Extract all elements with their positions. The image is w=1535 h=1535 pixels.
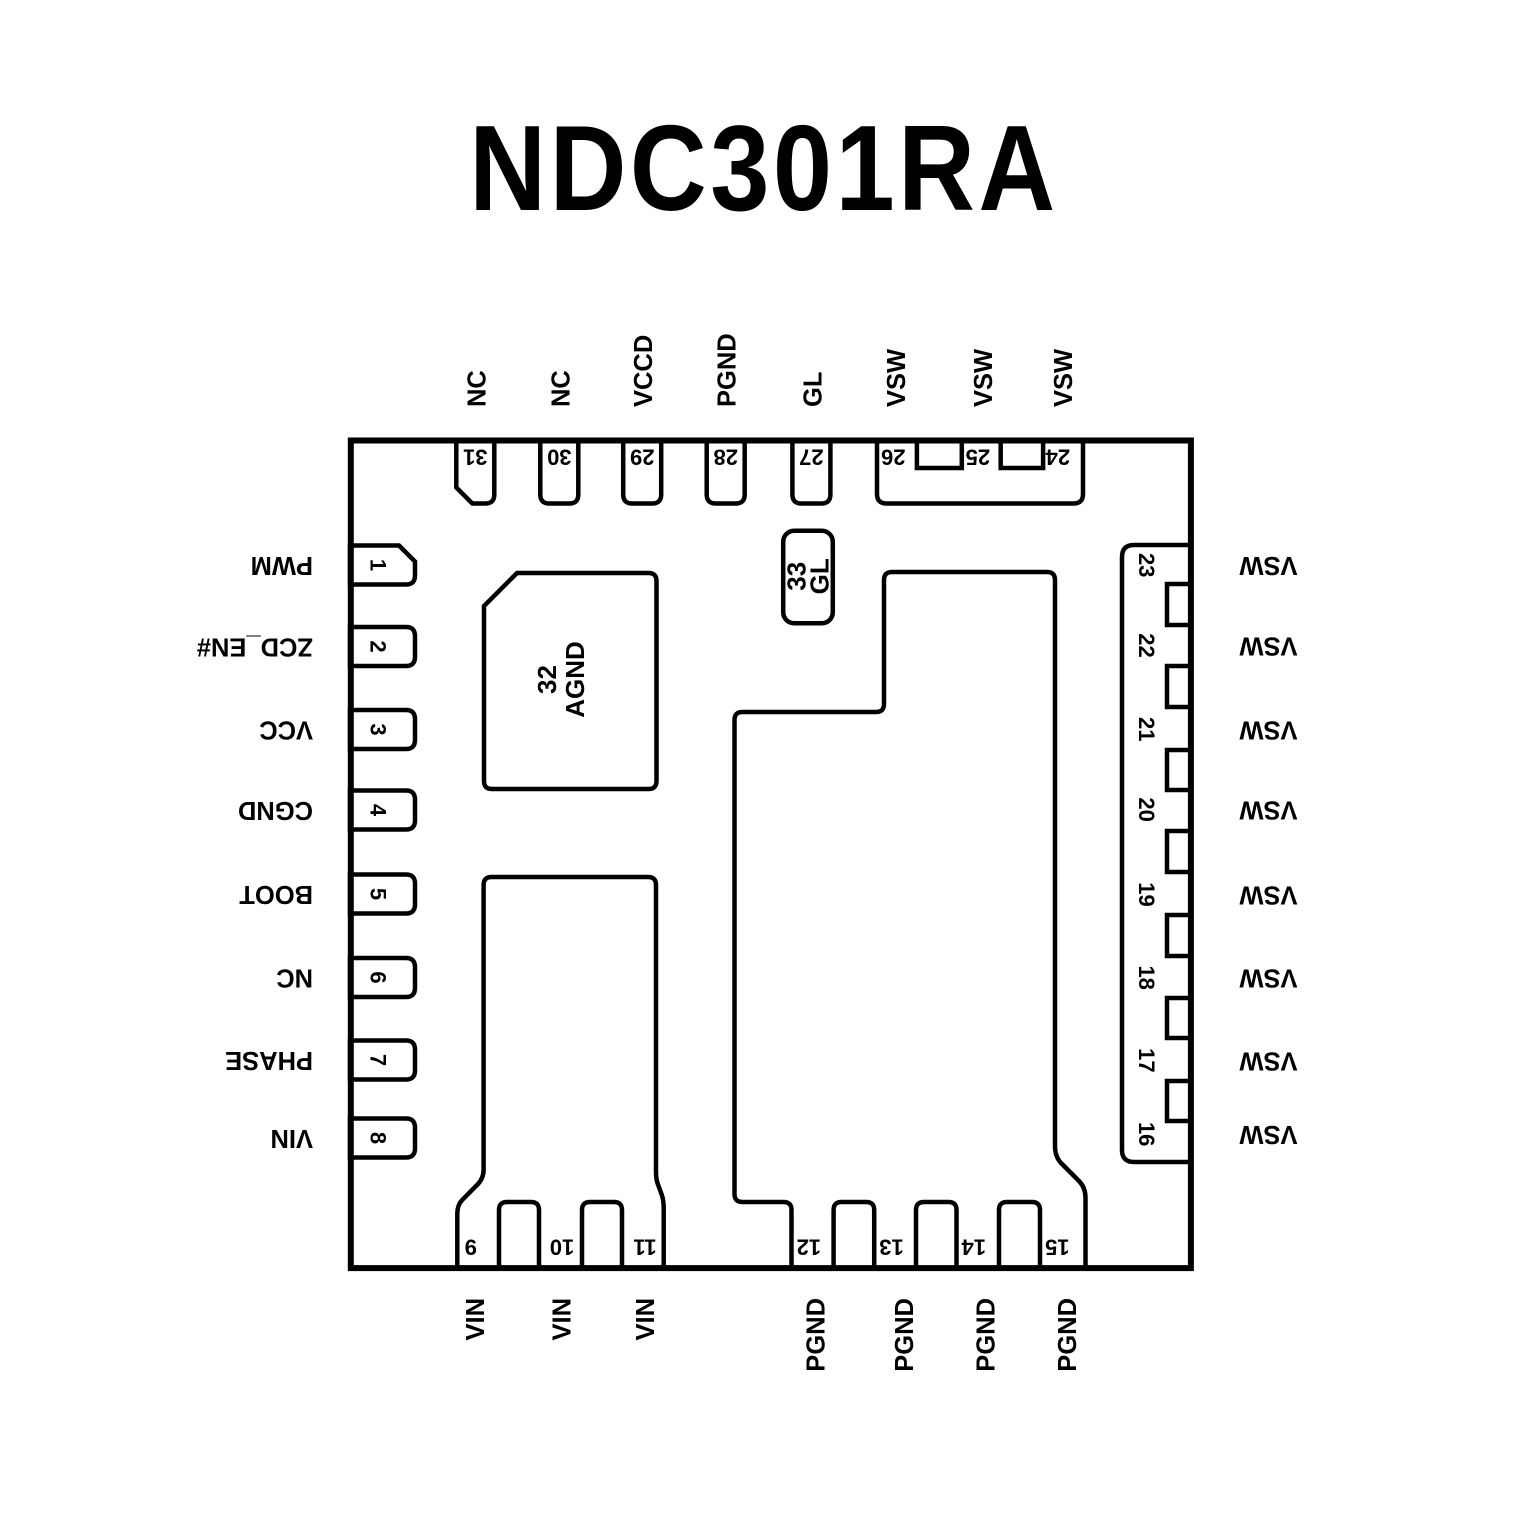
svg-text:11: 11 xyxy=(633,1235,656,1260)
svg-text:CGND: CGND xyxy=(238,796,313,824)
svg-text:PGND: PGND xyxy=(714,333,742,407)
svg-text:16: 16 xyxy=(1134,1122,1159,1146)
svg-text:6: 6 xyxy=(366,971,391,983)
svg-text:VSW: VSW xyxy=(1238,715,1297,743)
svg-text:15: 15 xyxy=(1045,1235,1069,1260)
svg-text:VSW: VSW xyxy=(1238,1120,1297,1148)
svg-text:PGND: PGND xyxy=(891,1298,919,1372)
svg-text:VCCD: VCCD xyxy=(630,335,658,407)
svg-text:NC: NC xyxy=(276,964,313,992)
svg-text:VSW: VSW xyxy=(1238,964,1297,992)
svg-text:14: 14 xyxy=(961,1235,986,1260)
svg-text:PGND: PGND xyxy=(973,1298,1001,1372)
svg-text:VSW: VSW xyxy=(1050,348,1078,407)
svg-text:VSW: VSW xyxy=(1238,1046,1297,1074)
svg-text:PWM: PWM xyxy=(251,551,313,579)
svg-text:5: 5 xyxy=(366,888,391,900)
svg-text:VSW: VSW xyxy=(970,348,998,407)
svg-text:29: 29 xyxy=(630,445,654,470)
svg-text:VSW: VSW xyxy=(1238,881,1297,909)
svg-text:3: 3 xyxy=(366,723,391,735)
svg-text:NDC301RA: NDC301RA xyxy=(469,100,1058,236)
svg-text:NC: NC xyxy=(547,370,575,407)
svg-text:12: 12 xyxy=(797,1235,821,1260)
svg-text:PHASE: PHASE xyxy=(225,1046,313,1074)
svg-text:ZCD_EN#: ZCD_EN# xyxy=(197,633,313,661)
svg-text:VCC: VCC xyxy=(259,716,313,744)
svg-text:23: 23 xyxy=(1134,553,1159,577)
svg-text:VSW: VSW xyxy=(1238,551,1297,579)
svg-text:VSW: VSW xyxy=(883,348,911,407)
svg-text:18: 18 xyxy=(1134,965,1159,989)
svg-text:20: 20 xyxy=(1134,797,1159,821)
svg-text:NC: NC xyxy=(463,370,491,407)
svg-text:VSW: VSW xyxy=(1238,632,1297,660)
svg-text:17: 17 xyxy=(1134,1048,1159,1072)
svg-text:1: 1 xyxy=(366,559,391,571)
svg-text:28: 28 xyxy=(713,445,737,470)
svg-text:VIN: VIN xyxy=(632,1298,660,1341)
svg-text:26: 26 xyxy=(881,445,905,470)
svg-text:GL: GL xyxy=(804,558,834,594)
svg-text:VIN: VIN xyxy=(270,1124,313,1152)
svg-text:24: 24 xyxy=(1045,445,1070,470)
svg-text:25: 25 xyxy=(966,445,990,470)
svg-text:VIN: VIN xyxy=(548,1298,576,1341)
svg-text:BOOT: BOOT xyxy=(239,880,313,908)
svg-text:VSW: VSW xyxy=(1238,796,1297,824)
svg-text:AGND: AGND xyxy=(560,641,590,718)
svg-text:21: 21 xyxy=(1134,717,1159,741)
svg-text:PGND: PGND xyxy=(1054,1298,1082,1372)
svg-text:7: 7 xyxy=(366,1054,391,1066)
svg-text:VIN: VIN xyxy=(462,1298,490,1341)
svg-text:GL: GL xyxy=(799,372,827,407)
svg-text:22: 22 xyxy=(1134,633,1159,657)
svg-text:4: 4 xyxy=(366,804,391,817)
svg-text:27: 27 xyxy=(799,445,823,470)
svg-text:13: 13 xyxy=(879,1235,903,1260)
svg-text:PGND: PGND xyxy=(802,1298,830,1372)
svg-text:10: 10 xyxy=(550,1235,574,1260)
svg-text:31: 31 xyxy=(463,445,487,470)
svg-text:8: 8 xyxy=(366,1132,391,1144)
svg-text:30: 30 xyxy=(547,445,571,470)
svg-text:2: 2 xyxy=(366,640,391,652)
svg-text:9: 9 xyxy=(465,1235,477,1260)
svg-text:32: 32 xyxy=(532,665,562,694)
svg-text:19: 19 xyxy=(1134,882,1159,906)
